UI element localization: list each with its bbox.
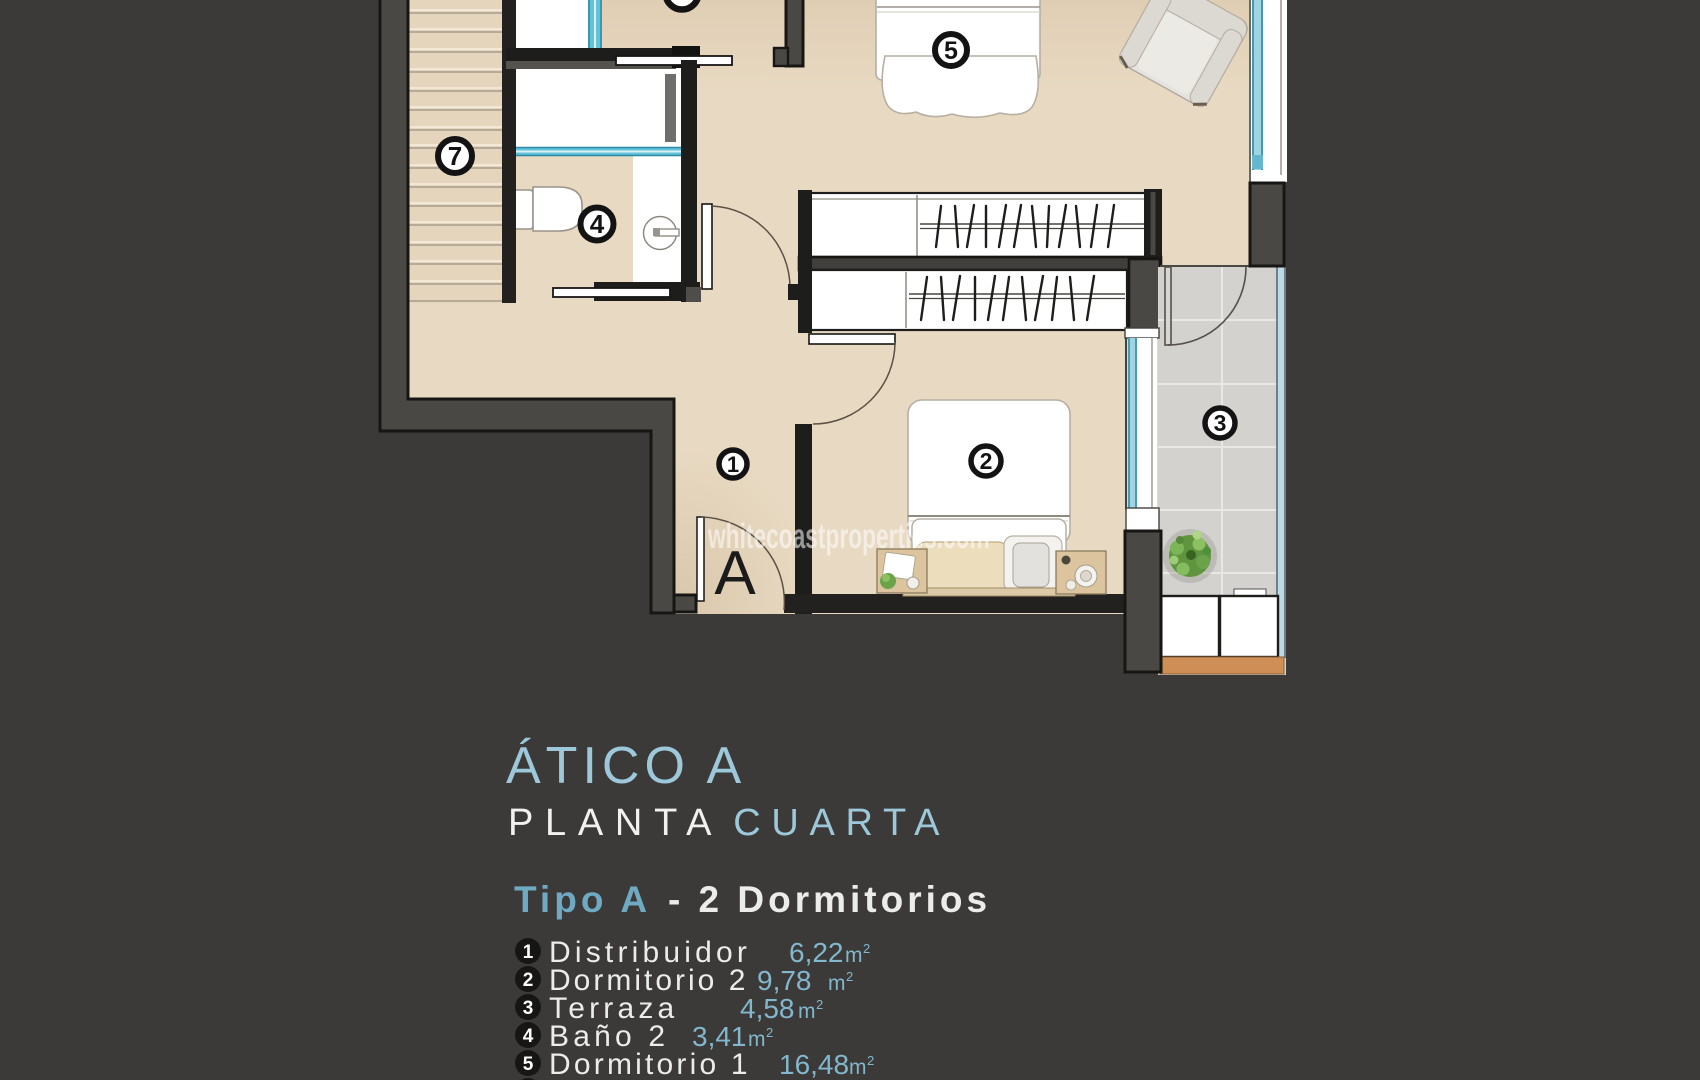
svg-text:5: 5 (944, 37, 958, 65)
svg-text:m: m (828, 972, 846, 995)
svg-text:1: 1 (523, 942, 534, 963)
svg-text:m: m (849, 1056, 867, 1079)
svg-text:3: 3 (523, 998, 534, 1019)
svg-text:2: 2 (863, 941, 870, 956)
svg-text:2: 2 (980, 448, 993, 474)
svg-text:Baño 1: Baño 1 (549, 1076, 669, 1080)
svg-text:2: 2 (867, 1053, 874, 1068)
svg-text:5: 5 (523, 1054, 534, 1075)
svg-text:m: m (845, 944, 863, 967)
svg-text:3: 3 (1214, 410, 1227, 436)
svg-text:6,22: 6,22 (789, 937, 844, 968)
svg-text:2: 2 (766, 1025, 773, 1040)
svg-text:1: 1 (727, 452, 739, 477)
svg-text:m: m (798, 1000, 816, 1023)
svg-text:9,78: 9,78 (757, 965, 812, 996)
svg-text:4,58: 4,58 (740, 993, 795, 1024)
svg-text:whitecoastproperties.com: whitecoastproperties.com (707, 517, 990, 556)
svg-text:16,48: 16,48 (779, 1049, 849, 1080)
svg-text:4: 4 (523, 1026, 534, 1047)
svg-text:2: 2 (846, 969, 853, 984)
svg-text:2: 2 (523, 970, 534, 991)
svg-text:ÁTICO A: ÁTICO A (506, 737, 746, 795)
svg-text:4: 4 (590, 209, 605, 239)
svg-text:2: 2 (816, 997, 823, 1012)
svg-text:7: 7 (448, 141, 462, 171)
svg-text:Tipo A - 2 Dormitorios: Tipo A - 2 Dormitorios (514, 879, 991, 920)
